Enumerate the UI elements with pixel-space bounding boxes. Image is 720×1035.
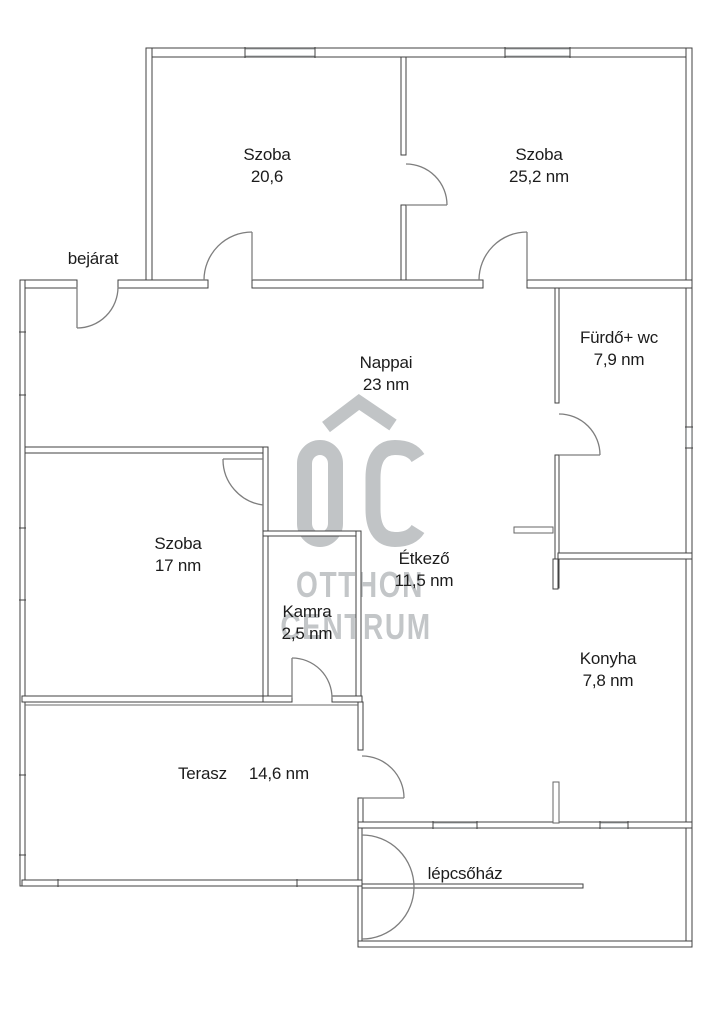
radiator-icon <box>514 527 559 823</box>
floorplan-drawing <box>0 0 720 1035</box>
walls <box>20 48 692 947</box>
windows <box>245 49 692 828</box>
wall-ticks <box>19 47 693 887</box>
floorplan-canvas: OTTHON CENTRUM <box>0 0 720 1035</box>
